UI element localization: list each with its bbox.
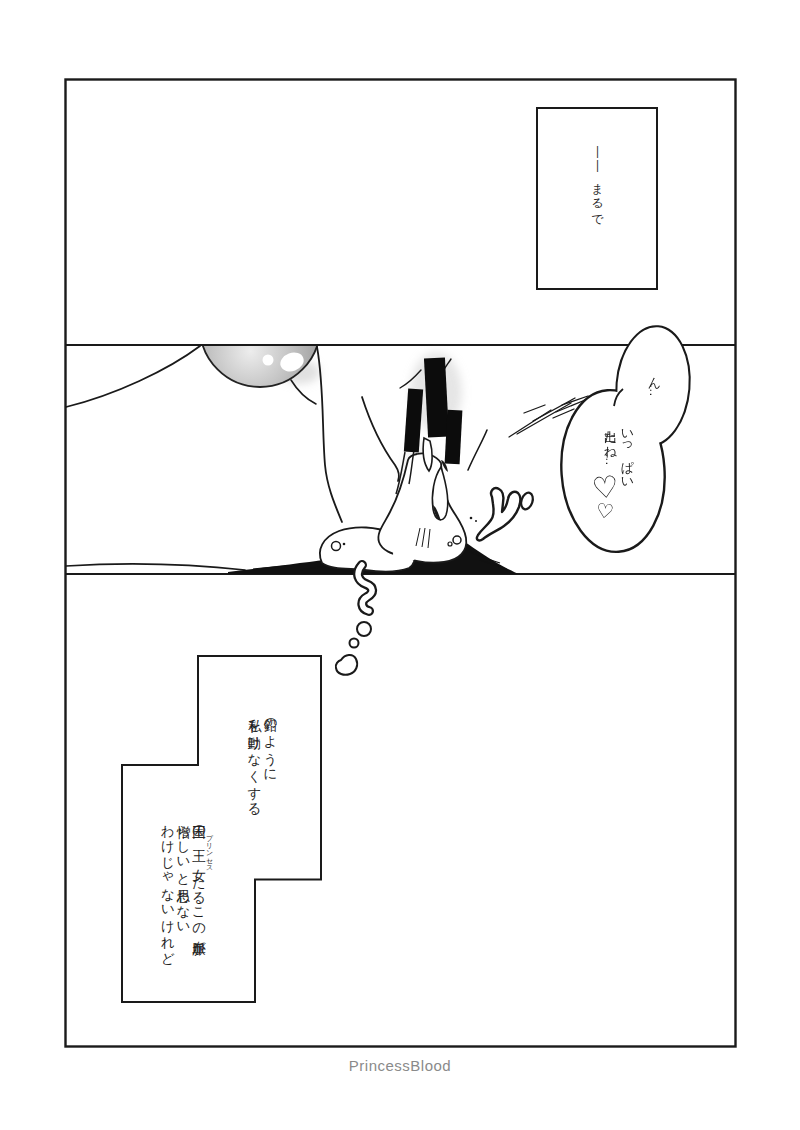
monologue-lower: 王国の王女プリンセスたるこの血脈が 憎らしいと思わない わけじゃないけれど: [155, 815, 213, 1000]
censor-bar-center: [424, 358, 449, 438]
monologue-upper-col1: 鉛のように: [262, 708, 278, 828]
drip-blob: [336, 655, 357, 675]
fluid-join-patch: [393, 545, 417, 563]
glossy-orb: [200, 267, 320, 387]
manga-page: ――まるで ん… いっぱい 出たね… ♡ ♡ 鉛のように 私を動けなくする 王国…: [0, 0, 800, 1130]
ruby-princess: 王女プリンセス: [192, 832, 207, 866]
bubble-text-lower-col1: いっぱい: [619, 420, 636, 484]
monologue-upper-col2: 私を動けなくする: [246, 708, 262, 828]
orb-highlight-small: [263, 355, 274, 366]
drip-drop-large: [357, 622, 371, 636]
artwork-svg: [0, 0, 800, 1130]
squiggle-mark: [477, 488, 535, 540]
monologue-box: [122, 656, 321, 1002]
caption-box-textwrap: ――まるで: [537, 108, 657, 289]
caption-text: ――まるで: [589, 146, 606, 221]
monologue-lower-col3: わけじゃないけれど: [160, 815, 176, 1000]
middle-panel-art: [66, 267, 590, 574]
monologue-lower-col1: 王国の王女プリンセスたるこの血脈が: [191, 815, 213, 1000]
heart-icon-small: ♡: [595, 500, 616, 522]
drip-drop-small: [350, 639, 359, 648]
drips: [336, 565, 372, 675]
bubble-text-upper: ん…: [645, 368, 663, 398]
monologue-upper: 鉛のように 私を動けなくする: [244, 708, 278, 828]
censor-bar-right: [445, 410, 463, 465]
monologue-lower-col2: 憎らしいと思わない: [176, 815, 192, 1000]
footer-credit: PrincessBlood: [0, 1057, 800, 1074]
ground-line: [66, 564, 245, 570]
